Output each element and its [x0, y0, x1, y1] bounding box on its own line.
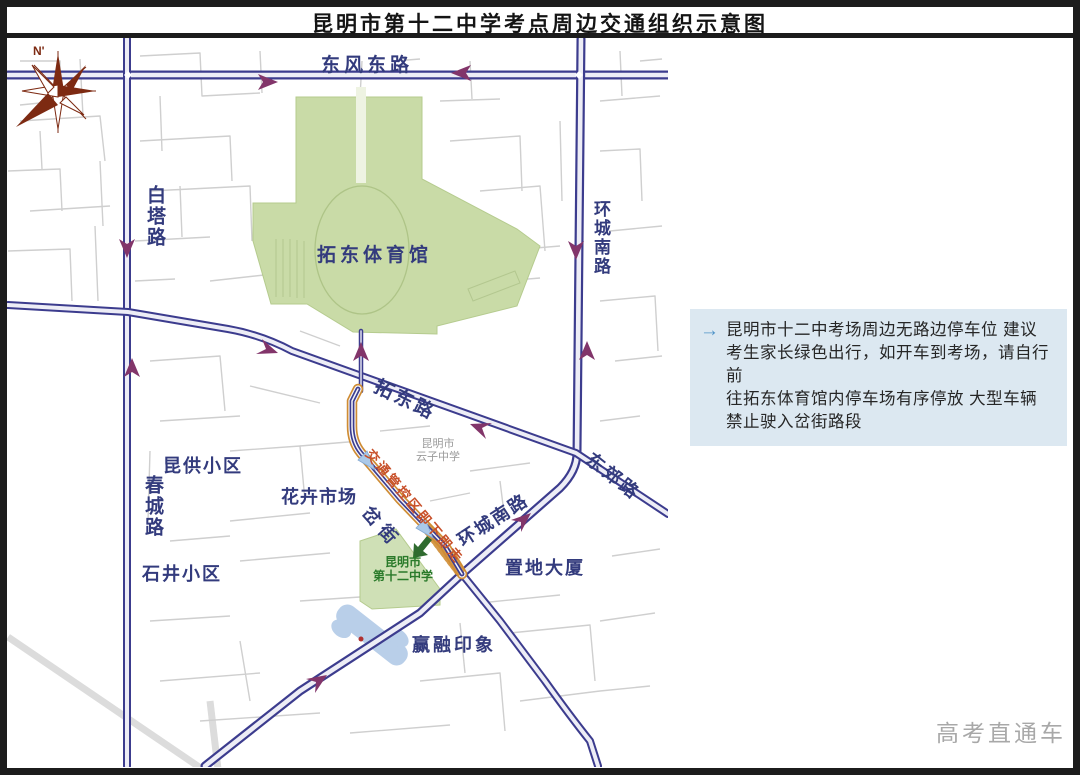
map-canvas [7, 38, 668, 767]
traffic-map [7, 38, 668, 767]
label-yunzi-school: 昆明市 云子中学 [412, 438, 464, 464]
label-exam-school-line1: 昆明市 [370, 555, 436, 569]
advisory-line-2: 考生家长绿色出行，如开车到考场，请自行前 [726, 342, 1055, 388]
advisory-note-box: → 昆明市十二中考场周边无路边停车位 建议 考生家长绿色出行，如开车到考场，请自… [690, 309, 1067, 446]
label-exam-school: 昆明市 第十二中学 [370, 555, 436, 583]
label-zhidi-building: 置地大厦 [505, 554, 585, 580]
page: 昆明市第十二中学考点周边交通组织示意图 [0, 0, 1080, 775]
label-dongfeng-east-rd: 东风东路 [321, 50, 413, 77]
bridge-marker-dot [359, 637, 364, 642]
label-yunzi-school-line1: 昆明市 [412, 438, 464, 451]
bg-wide-streets [8, 637, 218, 767]
label-tuodong-stadium: 拓东体育馆 [317, 240, 432, 267]
page-title: 昆明市第十二中学考点周边交通组织示意图 [0, 8, 1080, 34]
label-shijing-residential: 石井小区 [142, 560, 222, 586]
label-baita-rd: 白塔路 [141, 185, 168, 248]
label-kungong-residential: 昆供小区 [163, 452, 243, 478]
stadium-area [253, 87, 540, 334]
advisory-line-4: 禁止驶入岔街路段 [726, 411, 1055, 434]
road-southeast [462, 574, 598, 766]
stadium-polygon [253, 97, 540, 334]
label-chuncheng-rd: 春城路 [139, 475, 166, 538]
label-exam-school-line2: 第十二中学 [370, 569, 436, 583]
advisory-line-3: 往拓东体育馆内停车场有序停放 大型车辆 [726, 388, 1055, 411]
advisory-line-1: 昆明市十二中考场周边无路边停车位 建议 [726, 319, 1055, 342]
advisory-text: 昆明市十二中考场周边无路边停车位 建议 考生家长绿色出行，如开车到考场，请自行前… [726, 319, 1055, 434]
compass-rose-icon [16, 51, 96, 133]
label-huancheng-south-rd-north: 环城南路 [588, 200, 613, 276]
label-flower-market: 花卉市场 [281, 483, 357, 509]
advisory-arrow-icon: → [700, 319, 719, 434]
compass-north-label: N' [33, 44, 45, 58]
watermark-text: 高考直通车 [936, 714, 1066, 748]
label-yingrong-impression: 赢融印象 [412, 631, 496, 657]
label-yunzi-school-line2: 云子中学 [412, 451, 464, 464]
